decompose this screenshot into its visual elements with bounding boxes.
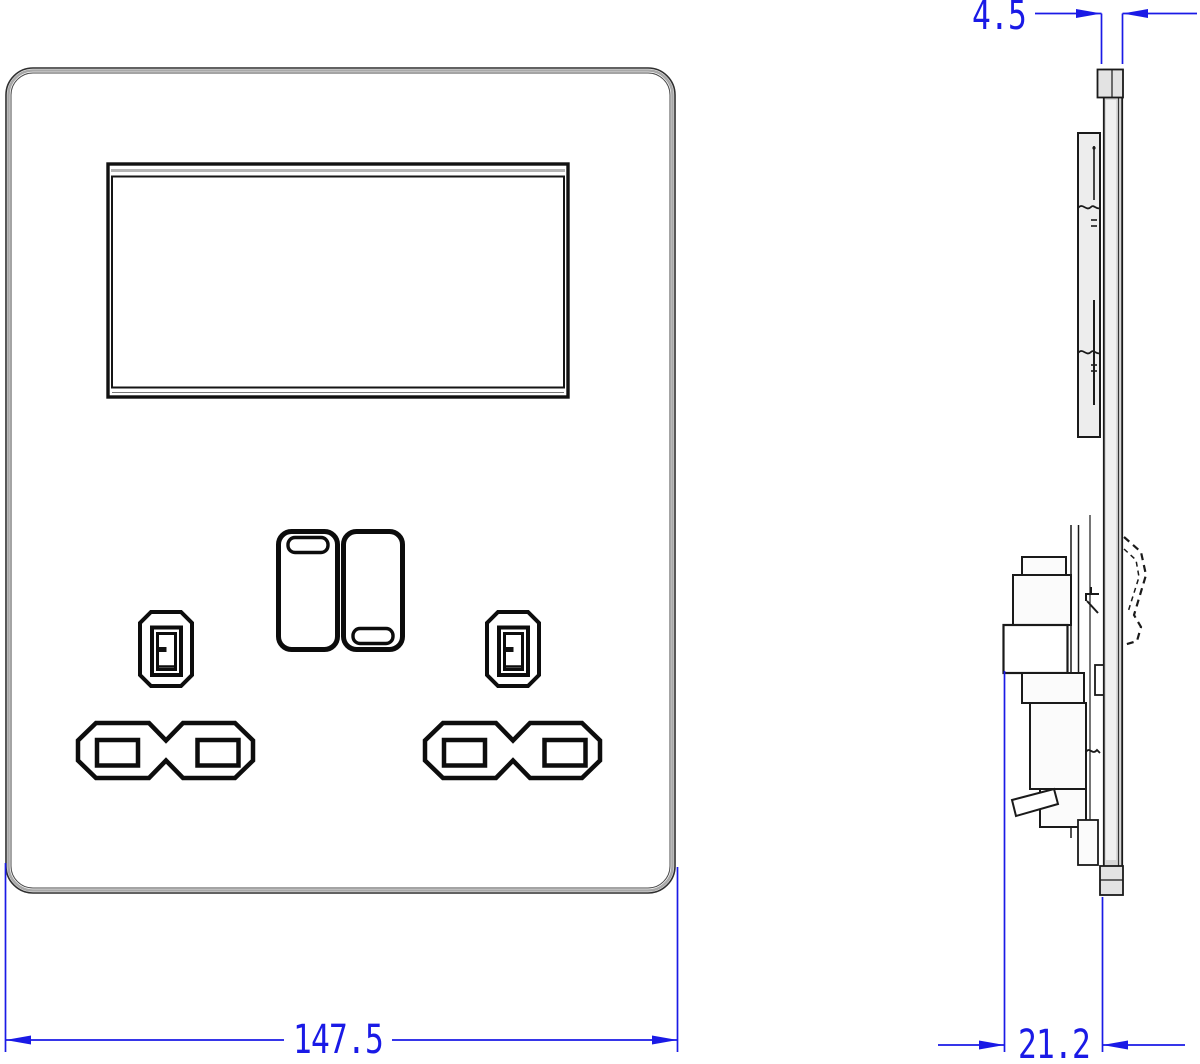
dim-thickness-label: 4.5 (972, 0, 1026, 36)
front-view (6, 68, 675, 893)
rocker-switch-left[interactable] (279, 532, 338, 650)
dim-depth-label: 21.2 (1018, 1025, 1090, 1064)
faceplate-profile (1098, 69, 1124, 895)
display-window (108, 164, 568, 397)
display-module-profile (1078, 133, 1100, 437)
dim-width-label: 147.5 (293, 1020, 383, 1060)
rocker-switch-right[interactable] (344, 532, 403, 650)
drawing-svg (0, 0, 1200, 1064)
socket-mechanism-profile (1004, 515, 1110, 865)
earth-pin-aperture-right (487, 612, 539, 686)
rocker-switch-profile-hidden-line (1124, 537, 1146, 645)
side-view (1004, 69, 1147, 895)
technical-drawing-canvas: 4.5 147.5 21.2 (0, 0, 1200, 1064)
dim-thickness-graphics (1035, 9, 1197, 64)
